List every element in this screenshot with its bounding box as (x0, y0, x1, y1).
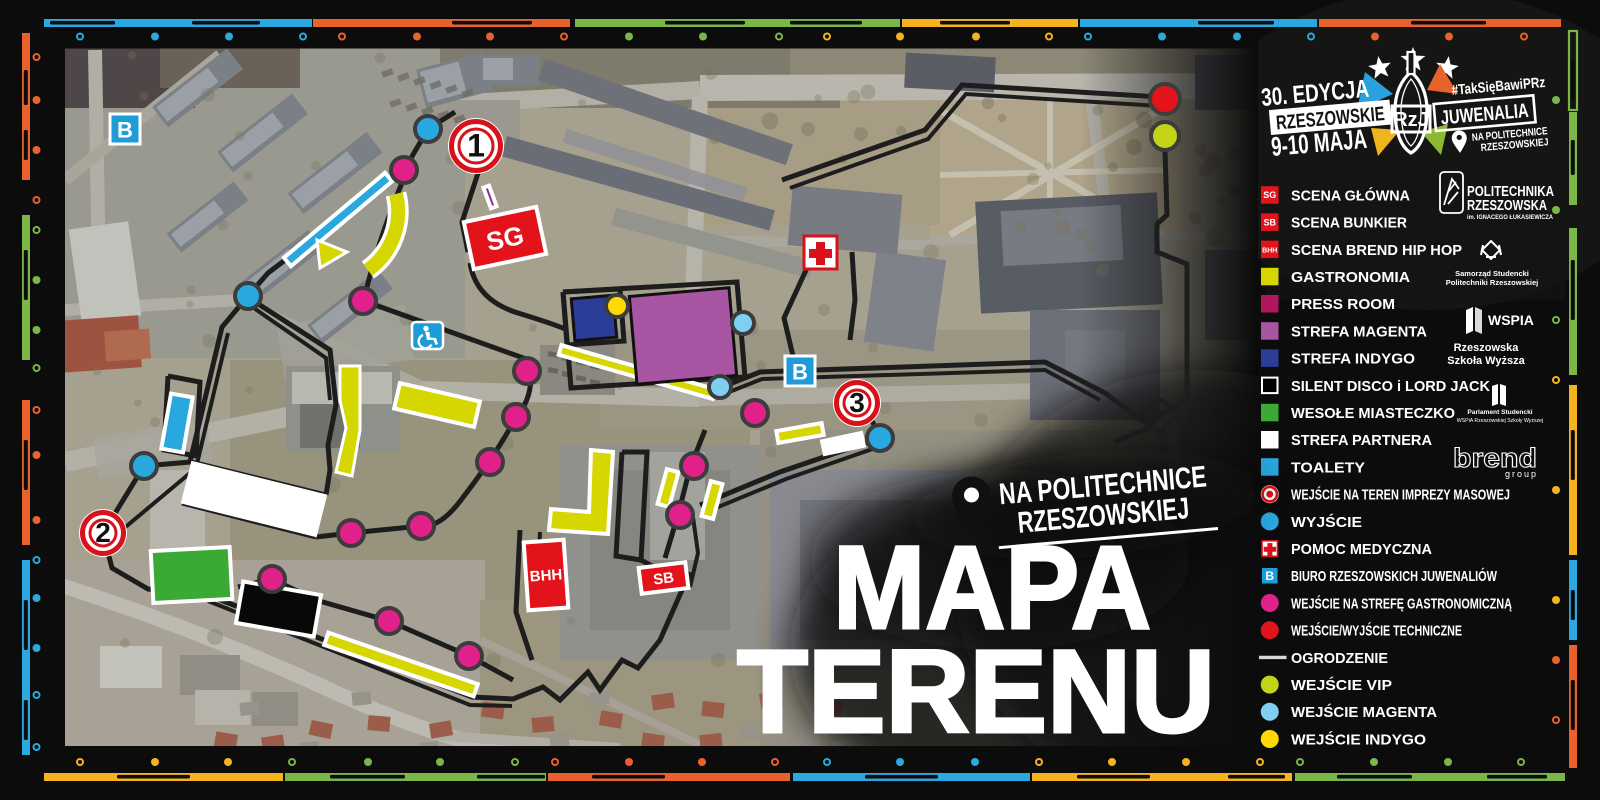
svg-text:Samorząd Studencki: Samorząd Studencki (1455, 269, 1529, 278)
svg-text:WEJŚCIE NA TEREN IMPREZY MASOW: WEJŚCIE NA TEREN IMPREZY MASOWEJ (1291, 486, 1510, 504)
svg-text:Parlament Studencki: Parlament Studencki (1467, 409, 1532, 416)
svg-text:group: group (1505, 469, 1538, 479)
svg-text:Szkoła Wyższa: Szkoła Wyższa (1447, 355, 1525, 367)
svg-text:WYJŚCIE: WYJŚCIE (1291, 513, 1362, 531)
svg-text:B: B (1265, 569, 1274, 583)
svg-text:SB: SB (652, 569, 675, 588)
svg-text:SILENT DISCO i LORD JACK: SILENT DISCO i LORD JACK (1291, 379, 1490, 395)
svg-text:BHH: BHH (529, 566, 563, 585)
svg-text:SCENA BREND HIP HOP: SCENA BREND HIP HOP (1291, 243, 1462, 259)
svg-text:SG: SG (1263, 190, 1276, 200)
svg-text:3: 3 (849, 387, 865, 418)
svg-text:WESOŁE MIASTECZKO: WESOŁE MIASTECZKO (1291, 406, 1455, 422)
svg-text:Rzeszowska: Rzeszowska (1454, 342, 1520, 354)
svg-text:SB: SB (1263, 217, 1276, 227)
svg-text:TOALETY: TOALETY (1291, 460, 1365, 476)
svg-text:B: B (792, 359, 808, 384)
svg-text:WEJŚCIE MAGENTA: WEJŚCIE MAGENTA (1291, 703, 1437, 721)
svg-text:BIURO RZESZOWSKICH JUWENALIÓW: BIURO RZESZOWSKICH JUWENALIÓW (1291, 567, 1497, 585)
svg-text:STREFA INDYGO: STREFA INDYGO (1291, 352, 1415, 368)
svg-text:WEJŚCIE/WYJŚCIE TECHNICZNE: WEJŚCIE/WYJŚCIE TECHNICZNE (1291, 622, 1462, 640)
svg-text:Politechniki Rzeszowskiej: Politechniki Rzeszowskiej (1446, 278, 1539, 287)
svg-text:TERENU: TERENU (737, 626, 1215, 758)
svg-text:WEJŚCIE VIP: WEJŚCIE VIP (1291, 676, 1392, 694)
svg-text:WSPiA Rzeszowskiej Szkoły Wyżs: WSPiA Rzeszowskiej Szkoły Wyższej (1457, 418, 1543, 424)
svg-text:B: B (117, 117, 133, 142)
svg-text:OGRODZENIE: OGRODZENIE (1291, 651, 1388, 667)
svg-text:RZESZOWSKA: RZESZOWSKA (1467, 198, 1547, 214)
svg-text:STREFA PARTNERA: STREFA PARTNERA (1291, 433, 1432, 449)
svg-text:WEJŚCIE NA STREFĘ GASTRONOMICZ: WEJŚCIE NA STREFĘ GASTRONOMICZNĄ (1291, 594, 1512, 612)
svg-text:BHH: BHH (1262, 248, 1277, 255)
svg-text:1: 1 (467, 128, 485, 164)
svg-text:WEJŚCIE INDYGO: WEJŚCIE INDYGO (1291, 730, 1426, 748)
svg-text:RzJ: RzJ (1393, 109, 1429, 131)
svg-text:SCENA BUNKIER: SCENA BUNKIER (1291, 216, 1407, 232)
svg-text:WSPIA: WSPIA (1488, 312, 1534, 328)
svg-text:im. IGNACEGO ŁUKASIEWICZA: im. IGNACEGO ŁUKASIEWICZA (1467, 214, 1553, 221)
svg-text:GASTRONOMIA: GASTRONOMIA (1291, 270, 1410, 286)
svg-text:STREFA MAGENTA: STREFA MAGENTA (1291, 324, 1427, 340)
svg-text:SCENA GŁÓWNA: SCENA GŁÓWNA (1291, 186, 1410, 204)
svg-text:PRESS ROOM: PRESS ROOM (1291, 297, 1395, 313)
svg-text:2: 2 (95, 517, 111, 548)
svg-text:POMOC MEDYCZNA: POMOC MEDYCZNA (1291, 542, 1432, 558)
